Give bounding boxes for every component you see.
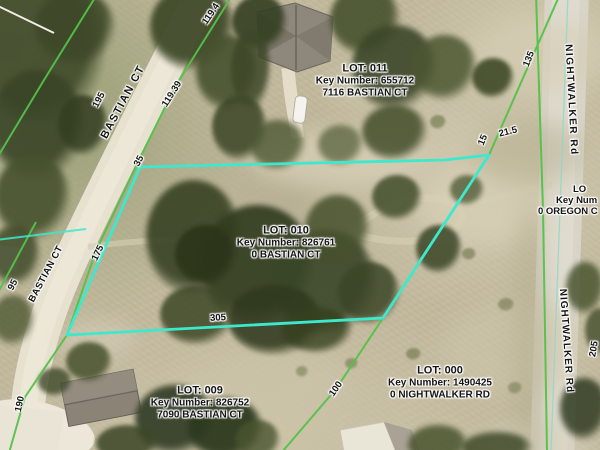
dimension-label: 190 bbox=[13, 395, 27, 413]
street-label-nightwalker-rd: NIGHTWALKER Rd bbox=[563, 44, 580, 156]
lot-key-number: Key Number: 655712 bbox=[316, 76, 414, 88]
lot-number: LOT: 009 bbox=[151, 384, 249, 397]
lot-label: LOT: 009 Key Number: 826752 7090 BASTIAN… bbox=[151, 384, 249, 421]
lot-key-partial: Key Num bbox=[556, 195, 597, 206]
lot-address: 0 BASTIAN CT bbox=[237, 250, 335, 262]
lot-label: LOT: 010 Key Number: 826761 0 BASTIAN CT bbox=[237, 224, 335, 261]
lot-address: 7090 BASTIAN CT bbox=[151, 410, 249, 422]
lot-key-number: Key Number: 826761 bbox=[237, 238, 335, 250]
lot-key-number: Key Number: 1490425 bbox=[388, 378, 492, 390]
lot-number: LOT: 000 bbox=[388, 364, 492, 377]
dimension-label: 95 bbox=[6, 278, 21, 293]
map-labels: LOT: 011 Key Number: 655712 7116 BASTIAN… bbox=[0, 0, 600, 450]
dimension-label: 135 bbox=[521, 50, 537, 69]
dimension-label: 21.5 bbox=[498, 124, 519, 139]
dimension-label: 119.4 bbox=[200, 1, 222, 26]
lot-number: LOT: 010 bbox=[237, 224, 335, 237]
lot-number: LOT: 011 bbox=[316, 62, 414, 75]
street-label-bastian-ct: BASTIAN CT bbox=[26, 244, 65, 304]
dimension-label: 15 bbox=[476, 133, 490, 147]
lot-label: LOT: 011 Key Number: 655712 7116 BASTIAN… bbox=[316, 62, 414, 99]
dimension-label: 35 bbox=[132, 154, 147, 169]
lot-number-partial: LO bbox=[573, 184, 586, 195]
dimension-label: 119.39 bbox=[160, 79, 184, 109]
dimension-label: 205 bbox=[587, 340, 600, 358]
lot-address-partial: 0 OREGON C bbox=[538, 206, 598, 217]
dimension-label: 175 bbox=[90, 243, 107, 262]
lot-label: LOT: 000 Key Number: 1490425 0 NIGHTWALK… bbox=[388, 364, 492, 401]
dimension-label: 305 bbox=[210, 312, 226, 324]
lot-key-number: Key Number: 826752 bbox=[151, 398, 249, 410]
lot-address: 0 NIGHTWALKER RD bbox=[388, 390, 492, 402]
dimension-label: 195 bbox=[90, 90, 107, 109]
gis-aerial-map[interactable]: LOT: 011 Key Number: 655712 7116 BASTIAN… bbox=[0, 0, 600, 450]
lot-address: 7116 BASTIAN CT bbox=[316, 88, 414, 100]
street-label-bastian-ct: BASTIAN CT bbox=[99, 63, 148, 141]
street-label-nightwalker-rd: NIGHTWALKER Rd bbox=[557, 288, 575, 393]
dimension-label: 100 bbox=[327, 379, 345, 398]
